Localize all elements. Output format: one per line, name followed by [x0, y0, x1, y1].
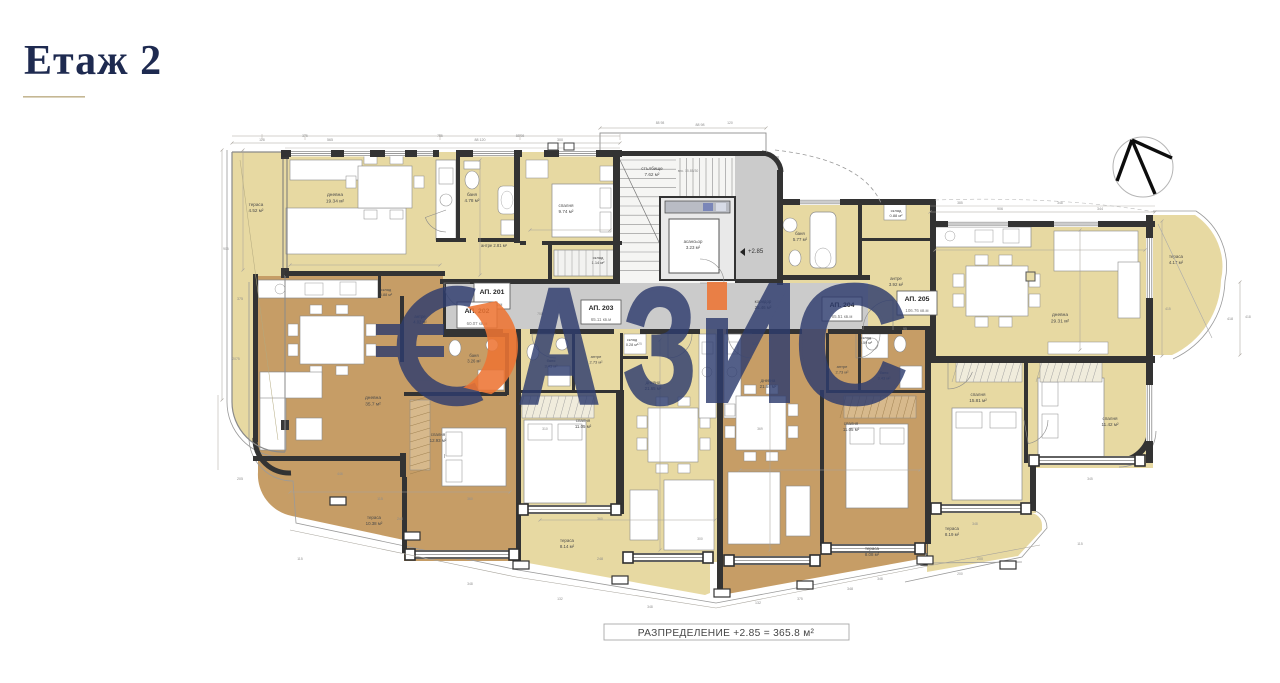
svg-text:115: 115 — [377, 497, 383, 501]
svg-text:Етаж 2: Етаж 2 — [24, 38, 162, 84]
svg-text:120: 120 — [727, 121, 733, 125]
svg-text:35.7 м²: 35.7 м² — [365, 401, 381, 407]
svg-text:3.26 м²: 3.26 м² — [467, 359, 481, 364]
svg-text:5.77 м²: 5.77 м² — [793, 237, 808, 242]
svg-text:3.23 м²: 3.23 м² — [686, 245, 701, 250]
svg-text:348: 348 — [972, 522, 978, 526]
svg-text:0.88 м²: 0.88 м² — [380, 293, 393, 297]
svg-text:вис. 15.85/30: вис. 15.85/30 — [678, 169, 699, 173]
svg-text:205: 205 — [237, 477, 243, 481]
svg-text:АП. 201: АП. 201 — [480, 289, 505, 296]
svg-text:300: 300 — [697, 537, 703, 541]
svg-text:348: 348 — [847, 587, 853, 591]
svg-text:тераса: тераса — [249, 202, 264, 207]
svg-text:8.08 м²: 8.08 м² — [865, 552, 880, 557]
svg-text:88 98: 88 98 — [696, 123, 705, 127]
svg-text:спалня: спалня — [431, 432, 446, 437]
svg-text:88 98: 88 98 — [656, 121, 665, 125]
svg-text:348: 348 — [877, 577, 883, 581]
svg-text:баня: баня — [469, 353, 478, 358]
svg-text:11.42 м²: 11.42 м² — [1101, 422, 1119, 427]
svg-text:баня: баня — [467, 192, 478, 197]
svg-text:дневна: дневна — [1052, 313, 1068, 318]
svg-text:8.19 м²: 8.19 м² — [945, 532, 960, 537]
svg-text:418: 418 — [1245, 315, 1251, 319]
svg-text:348: 348 — [467, 582, 473, 586]
svg-text:спалня: спалня — [1102, 416, 1118, 421]
svg-text:344: 344 — [1097, 207, 1103, 211]
svg-text:415: 415 — [1165, 307, 1171, 311]
svg-text:248: 248 — [597, 557, 603, 561]
svg-text:4.52 м²: 4.52 м² — [249, 208, 264, 213]
svg-text:905: 905 — [223, 247, 229, 251]
svg-text:375: 375 — [237, 297, 243, 301]
svg-text:115: 115 — [297, 557, 303, 561]
svg-text:385: 385 — [957, 201, 963, 205]
svg-text:132: 132 — [557, 597, 563, 601]
svg-text:12.93 м²: 12.93 м² — [430, 438, 447, 443]
svg-text:345: 345 — [1087, 477, 1093, 481]
svg-text:200: 200 — [977, 557, 983, 561]
svg-text:спалня: спалня — [558, 203, 574, 208]
svg-text:спалня: спалня — [970, 392, 986, 397]
svg-text:тераса: тераса — [865, 546, 879, 551]
svg-text:7.62 м²: 7.62 м² — [645, 172, 660, 177]
svg-text:тераса: тераса — [367, 515, 381, 520]
svg-text:8.14 м²: 8.14 м² — [560, 544, 575, 549]
svg-text:дневна: дневна — [365, 396, 381, 401]
svg-text:тераса: тераса — [1169, 254, 1183, 259]
svg-text:200: 200 — [957, 572, 963, 576]
svg-text:906: 906 — [997, 207, 1003, 211]
svg-text:132: 132 — [755, 601, 761, 605]
svg-text:240: 240 — [397, 517, 403, 521]
svg-text:АП. 205: АП. 205 — [905, 296, 930, 303]
svg-text:88 120: 88 120 — [475, 138, 486, 142]
svg-text:360: 360 — [467, 497, 473, 501]
svg-text:19.34 м²: 19.34 м² — [326, 198, 345, 204]
svg-text:348: 348 — [647, 605, 653, 609]
svg-text:З: З — [623, 254, 697, 438]
svg-text:2075: 2075 — [232, 357, 240, 361]
svg-text:РАЗПРЕДЕЛЕНИЕ +2.85 = 365.8 м²: РАЗПРЕДЕЛЕНИЕ +2.85 = 365.8 м² — [638, 628, 815, 639]
svg-text:асансьор: асансьор — [684, 239, 703, 244]
svg-text:369: 369 — [757, 427, 763, 431]
svg-text:565: 565 — [327, 138, 333, 142]
svg-text:дневна: дневна — [327, 193, 343, 198]
svg-text:29.31 м²: 29.31 м² — [1051, 318, 1070, 324]
svg-text:9.74 м²: 9.74 м² — [559, 209, 574, 214]
svg-text:А: А — [518, 254, 600, 438]
svg-text:115: 115 — [1077, 542, 1083, 546]
svg-text:106.76 кв.м: 106.76 кв.м — [905, 308, 928, 313]
svg-text:антре 2.81 м²: антре 2.81 м² — [481, 243, 508, 248]
svg-text:300: 300 — [557, 138, 563, 142]
svg-text:4.78 м²: 4.78 м² — [465, 198, 480, 203]
svg-text:375: 375 — [797, 597, 803, 601]
svg-text:0.88 м²: 0.88 м² — [890, 213, 904, 218]
svg-text:тераса: тераса — [945, 526, 959, 531]
svg-text:склад: склад — [381, 288, 392, 292]
svg-text:10.38 м²: 10.38 м² — [366, 521, 383, 526]
svg-text:418: 418 — [1227, 317, 1233, 321]
svg-text:360: 360 — [597, 517, 603, 521]
svg-text:446: 446 — [337, 472, 343, 476]
svg-text:баня: баня — [795, 231, 805, 236]
svg-text:стълбище: стълбище — [641, 166, 663, 171]
svg-text:тераса: тераса — [560, 538, 574, 543]
svg-text:+2.85: +2.85 — [748, 249, 764, 255]
svg-text:С: С — [794, 250, 908, 440]
svg-text:15.81 м²: 15.81 м² — [969, 398, 987, 403]
